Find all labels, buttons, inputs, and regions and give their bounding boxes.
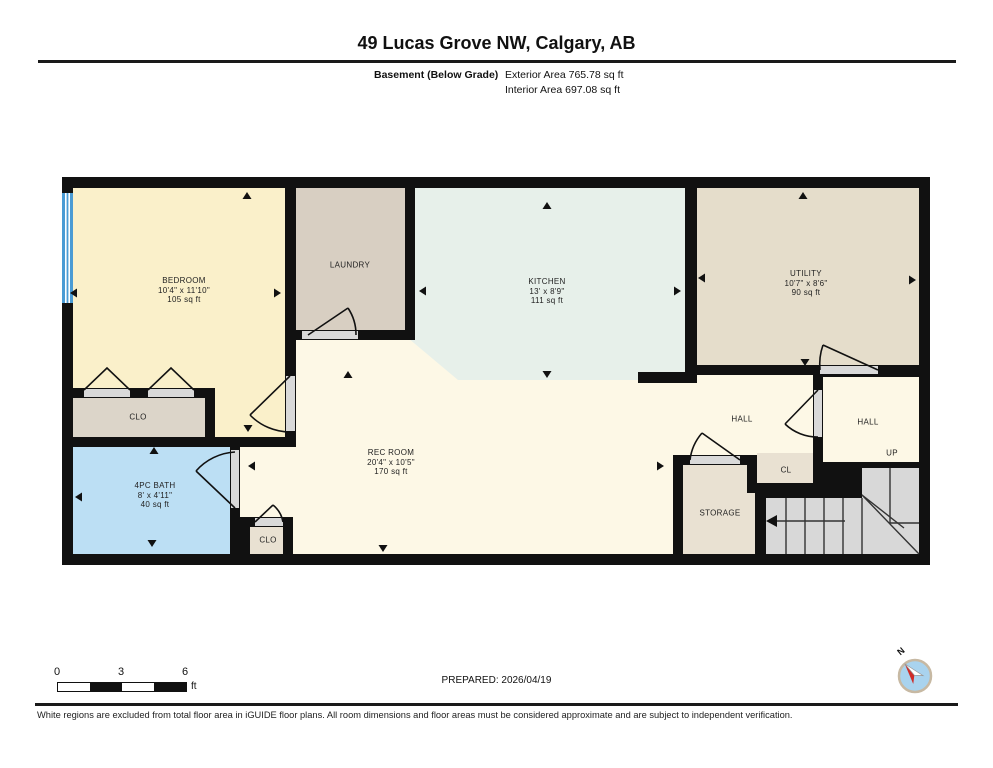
floor-plan-svg <box>62 177 930 565</box>
room-label-cl: CL <box>781 465 792 475</box>
window-icon <box>62 193 73 303</box>
compass-icon: N <box>885 638 955 708</box>
prepared-date: PREPARED: 2026/04/19 <box>0 675 993 686</box>
compass-n-label: N <box>895 645 906 657</box>
room-label-bedroom: BEDROOM 10'4" x 11'10" 105 sq ft <box>158 276 210 305</box>
footer-divider <box>35 703 958 706</box>
floor-label: Basement (Below Grade) <box>374 69 498 81</box>
room-laundry-floor <box>296 188 405 330</box>
title-divider <box>38 60 956 63</box>
interior-area: Interior Area 697.08 sq ft <box>505 84 620 96</box>
page-title: 49 Lucas Grove NW, Calgary, AB <box>0 33 993 54</box>
room-label-storage: STORAGE <box>699 508 740 518</box>
room-label-hall-left: HALL <box>731 414 752 424</box>
room-label-laundry: LAUNDRY <box>330 260 370 270</box>
room-label-kitchen: KITCHEN 13' x 8'9" 111 sq ft <box>528 277 565 306</box>
disclaimer-text: White regions are excluded from total fl… <box>37 710 793 720</box>
room-label-rec-room: REC ROOM 20'4" x 10'5" 170 sq ft <box>367 448 415 477</box>
room-label-closet-rec: CLO <box>259 535 276 545</box>
room-label-hall-right: HALL <box>857 417 878 427</box>
room-label-up: UP <box>886 448 898 458</box>
exterior-area: Exterior Area 765.78 sq ft <box>505 69 623 81</box>
floor-plan: BEDROOM 10'4" x 11'10" 105 sq ft LAUNDRY… <box>62 177 930 565</box>
floorplan-page: 49 Lucas Grove NW, Calgary, AB Basement … <box>0 0 993 768</box>
room-label-closet-bedroom: CLO <box>129 412 146 422</box>
room-label-bath: 4PC BATH 8' x 4'11" 40 sq ft <box>135 481 176 510</box>
room-label-utility: UTILITY 10'7" x 8'6" 90 sq ft <box>784 269 827 298</box>
